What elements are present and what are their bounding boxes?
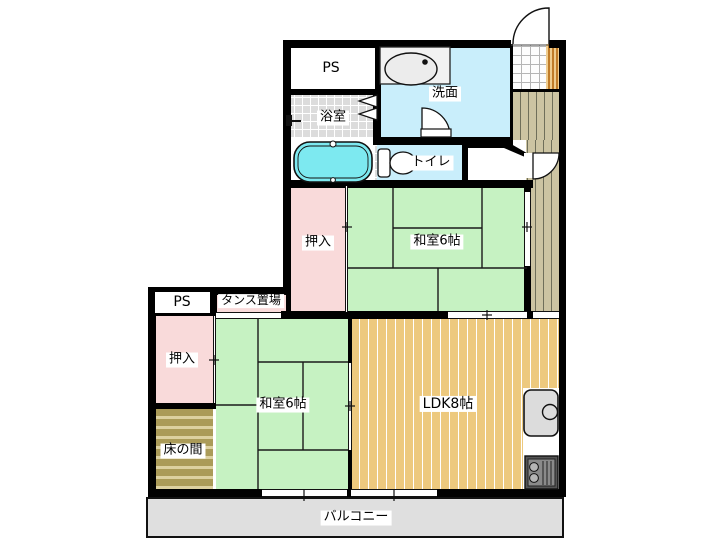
wall-right	[559, 40, 566, 497]
label-closet-left: 押入	[166, 353, 198, 368]
fusuma-closet-left	[213, 316, 216, 403]
entry-wood-step	[546, 44, 559, 91]
fusuma-closet-top	[345, 186, 348, 312]
label-tokonoma: 床の間	[160, 444, 205, 459]
entry-hall-floor	[466, 140, 526, 182]
wall-bottom-right	[437, 489, 566, 497]
sliding-door-washitsu-ldk-side	[348, 363, 352, 450]
sliding-door-washitsu-ldk-top	[448, 311, 527, 319]
wall-mid-band	[291, 311, 448, 319]
label-tansu: タンス置場	[218, 294, 284, 308]
floor-plan: PS 浴室 洗面 トイレ 押入 和室6帖 PS タンス置場 押入 床の間 和室6…	[0, 0, 710, 550]
label-washitsu-top: 和室6帖	[410, 235, 463, 250]
washitsu-top-floor	[348, 188, 527, 311]
wall-hall-seg1	[524, 180, 531, 192]
wall-washroom-bottom	[373, 137, 513, 145]
kitchen-counter	[523, 388, 559, 489]
wall-hall-seg2	[524, 266, 531, 315]
label-washitsu-bottom: 和室6帖	[256, 398, 309, 413]
label-balcony: バルコニー	[321, 511, 392, 526]
wall-ldk-left-upper	[348, 311, 352, 363]
hallway-floor-upper	[513, 91, 559, 140]
wall-tansu-bottom-bit	[281, 311, 291, 319]
bathtub-area	[289, 138, 375, 185]
entry-tile-floor	[513, 45, 546, 91]
label-closet-top: 押入	[302, 236, 334, 251]
wall-washroom-right	[510, 44, 513, 140]
label-washroom: 洗面	[429, 87, 461, 102]
sliding-door-washitsu-hallway	[524, 192, 531, 266]
label-ps-top: PS	[319, 60, 342, 76]
wall-toilet-right	[462, 137, 468, 182]
wall-wet-bottom	[283, 180, 533, 188]
wall-entry-line	[513, 89, 559, 92]
label-toilet: トイレ	[408, 156, 453, 171]
hallway-ldk-threshold	[533, 311, 559, 319]
label-bathroom: 浴室	[317, 111, 349, 126]
entry-door-icon	[511, 8, 549, 45]
window-washitsu	[262, 489, 347, 497]
label-ldk: LDK8帖	[420, 396, 477, 412]
wall-lower-left	[148, 287, 156, 497]
window-ldk	[351, 489, 437, 497]
wall-closet-tokonoma	[148, 403, 216, 409]
wall-bottom-left	[148, 489, 262, 497]
fusuma-tansu	[216, 312, 281, 319]
label-ps-left: PS	[170, 294, 193, 310]
